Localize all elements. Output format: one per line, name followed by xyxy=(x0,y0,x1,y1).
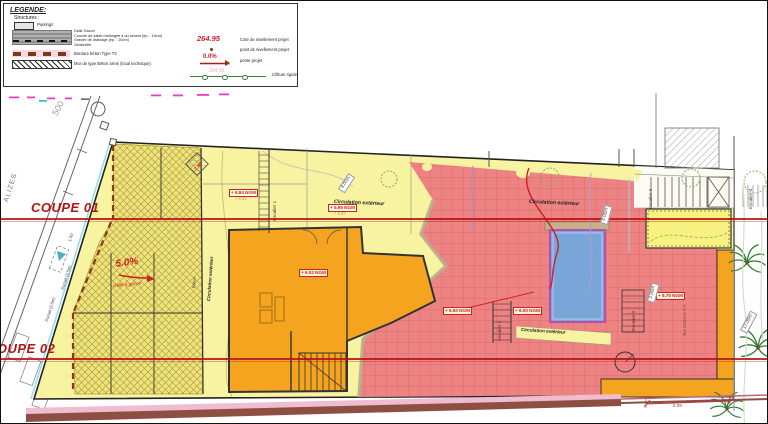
cloture-post xyxy=(242,75,248,81)
pool-deck xyxy=(545,222,609,230)
legend-mur-label: Mur de type Béton armé (local technique) xyxy=(74,62,151,67)
dalle-dashes xyxy=(13,40,71,42)
legend-panel: LEGENDE: Structures : Parkings Dalle Gaz… xyxy=(3,3,298,87)
escalier-4-label: Escalier 4 xyxy=(749,189,754,209)
gabion-wall-vertical xyxy=(717,250,734,397)
site-plan-sheet: COUPE 01 COUPE 02 5.0% Dalle à gazon 500… xyxy=(0,0,768,424)
legend-bordure-label: Bordure béton Type T2 xyxy=(74,52,117,57)
road-marker-square xyxy=(100,121,109,130)
pente-label: pente projet xyxy=(240,59,262,64)
coupe-02-label: COUPE 02 xyxy=(0,342,55,355)
clipped-drawing-dashes xyxy=(9,94,229,102)
parking-swatch-icon xyxy=(14,22,34,30)
bordure-swatch-icon xyxy=(12,50,70,57)
corner-marker xyxy=(110,139,117,146)
dim-label-e: 5.09 xyxy=(673,404,682,409)
escalier-1-label: Escalier 1 xyxy=(273,201,278,221)
gabion-wall-label: Mur GABION N°3 xyxy=(683,305,687,336)
existing-building-hatched xyxy=(665,128,719,168)
coupe-01-label: COUPE 01 xyxy=(31,201,99,214)
cloture-ghost-value: 264.95 xyxy=(209,69,224,75)
cote-label: Cote de nivellement projet xyxy=(240,38,289,43)
bordure-dashes xyxy=(13,52,69,56)
cloture-post xyxy=(202,75,208,81)
yellow-room xyxy=(646,209,731,248)
escalier-2b-label: Escalier 2 xyxy=(632,311,637,331)
cloture-label: Clôture rigide xyxy=(272,73,297,78)
pente-arrow-line xyxy=(200,63,225,64)
point-dot-icon xyxy=(210,48,213,51)
dalle-layers-swatch-icon xyxy=(12,30,72,45)
mur-swatch-icon xyxy=(12,60,72,69)
cloture-post xyxy=(222,75,228,81)
level-sub: + 5.97 xyxy=(334,212,346,216)
legend-structures-label: Structures : xyxy=(14,16,40,22)
pente-value: 0.0% xyxy=(203,54,217,61)
beton-label: Béton xyxy=(192,277,197,288)
escalier-3-label: Escalier 3 xyxy=(649,189,654,209)
level-sub: + 6.00 xyxy=(305,277,317,281)
legend-title: LEGENDE: xyxy=(10,7,46,15)
pente-arrow-head xyxy=(225,60,230,66)
level-label: + 6.50 NGM xyxy=(443,307,472,315)
level-label: + 6.00 NGM xyxy=(513,307,542,315)
cote-value: 264.95 xyxy=(197,35,220,43)
yellow-patch xyxy=(422,163,432,171)
level-sub: + 6.82 xyxy=(235,197,247,201)
legend-parkings-label: Parkings xyxy=(37,23,53,28)
escalier-2-label: Escalier 2 xyxy=(498,321,503,341)
road-marker-circle xyxy=(91,102,105,116)
legend-layer-4: Géotextile xyxy=(74,43,91,47)
point-label: point de nivellement projet xyxy=(240,48,289,53)
level-sub: + 6.68 xyxy=(662,300,674,304)
